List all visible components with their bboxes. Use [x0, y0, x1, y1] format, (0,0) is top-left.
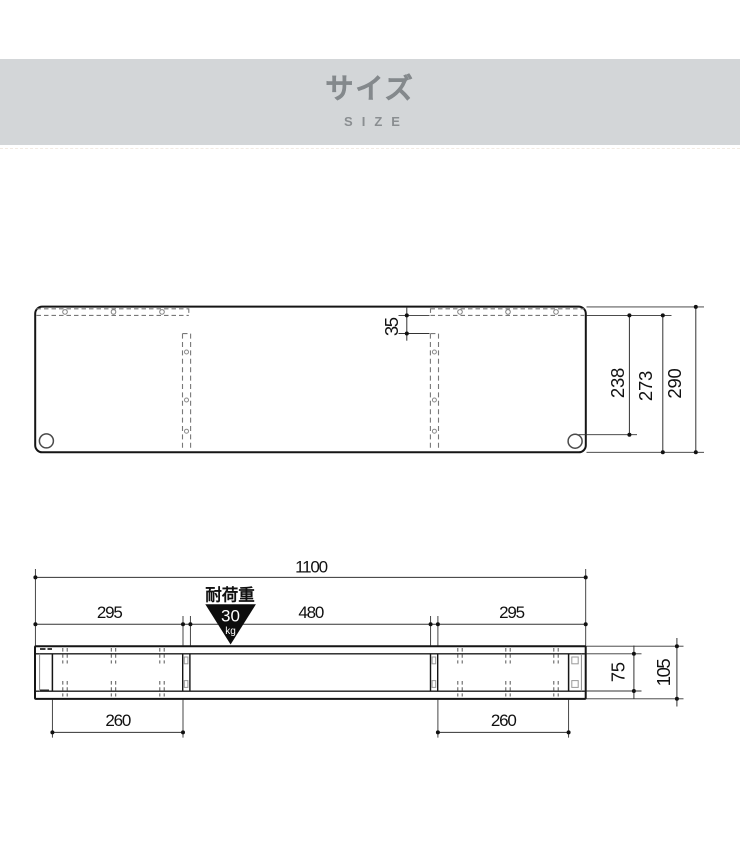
- svg-text:75: 75: [608, 662, 629, 682]
- svg-text:260: 260: [491, 711, 517, 730]
- svg-text:295: 295: [97, 603, 123, 622]
- svg-text:35: 35: [381, 317, 402, 336]
- svg-text:260: 260: [105, 711, 131, 730]
- svg-text:480: 480: [298, 603, 324, 622]
- svg-text:238: 238: [607, 368, 628, 398]
- svg-text:30: 30: [221, 606, 240, 625]
- svg-text:耐荷重: 耐荷重: [205, 585, 255, 605]
- svg-text:273: 273: [635, 371, 656, 401]
- svg-text:290: 290: [664, 368, 685, 398]
- svg-text:105: 105: [653, 659, 674, 687]
- svg-text:1100: 1100: [295, 558, 328, 577]
- svg-text:295: 295: [499, 603, 525, 622]
- svg-text:kg: kg: [225, 626, 236, 637]
